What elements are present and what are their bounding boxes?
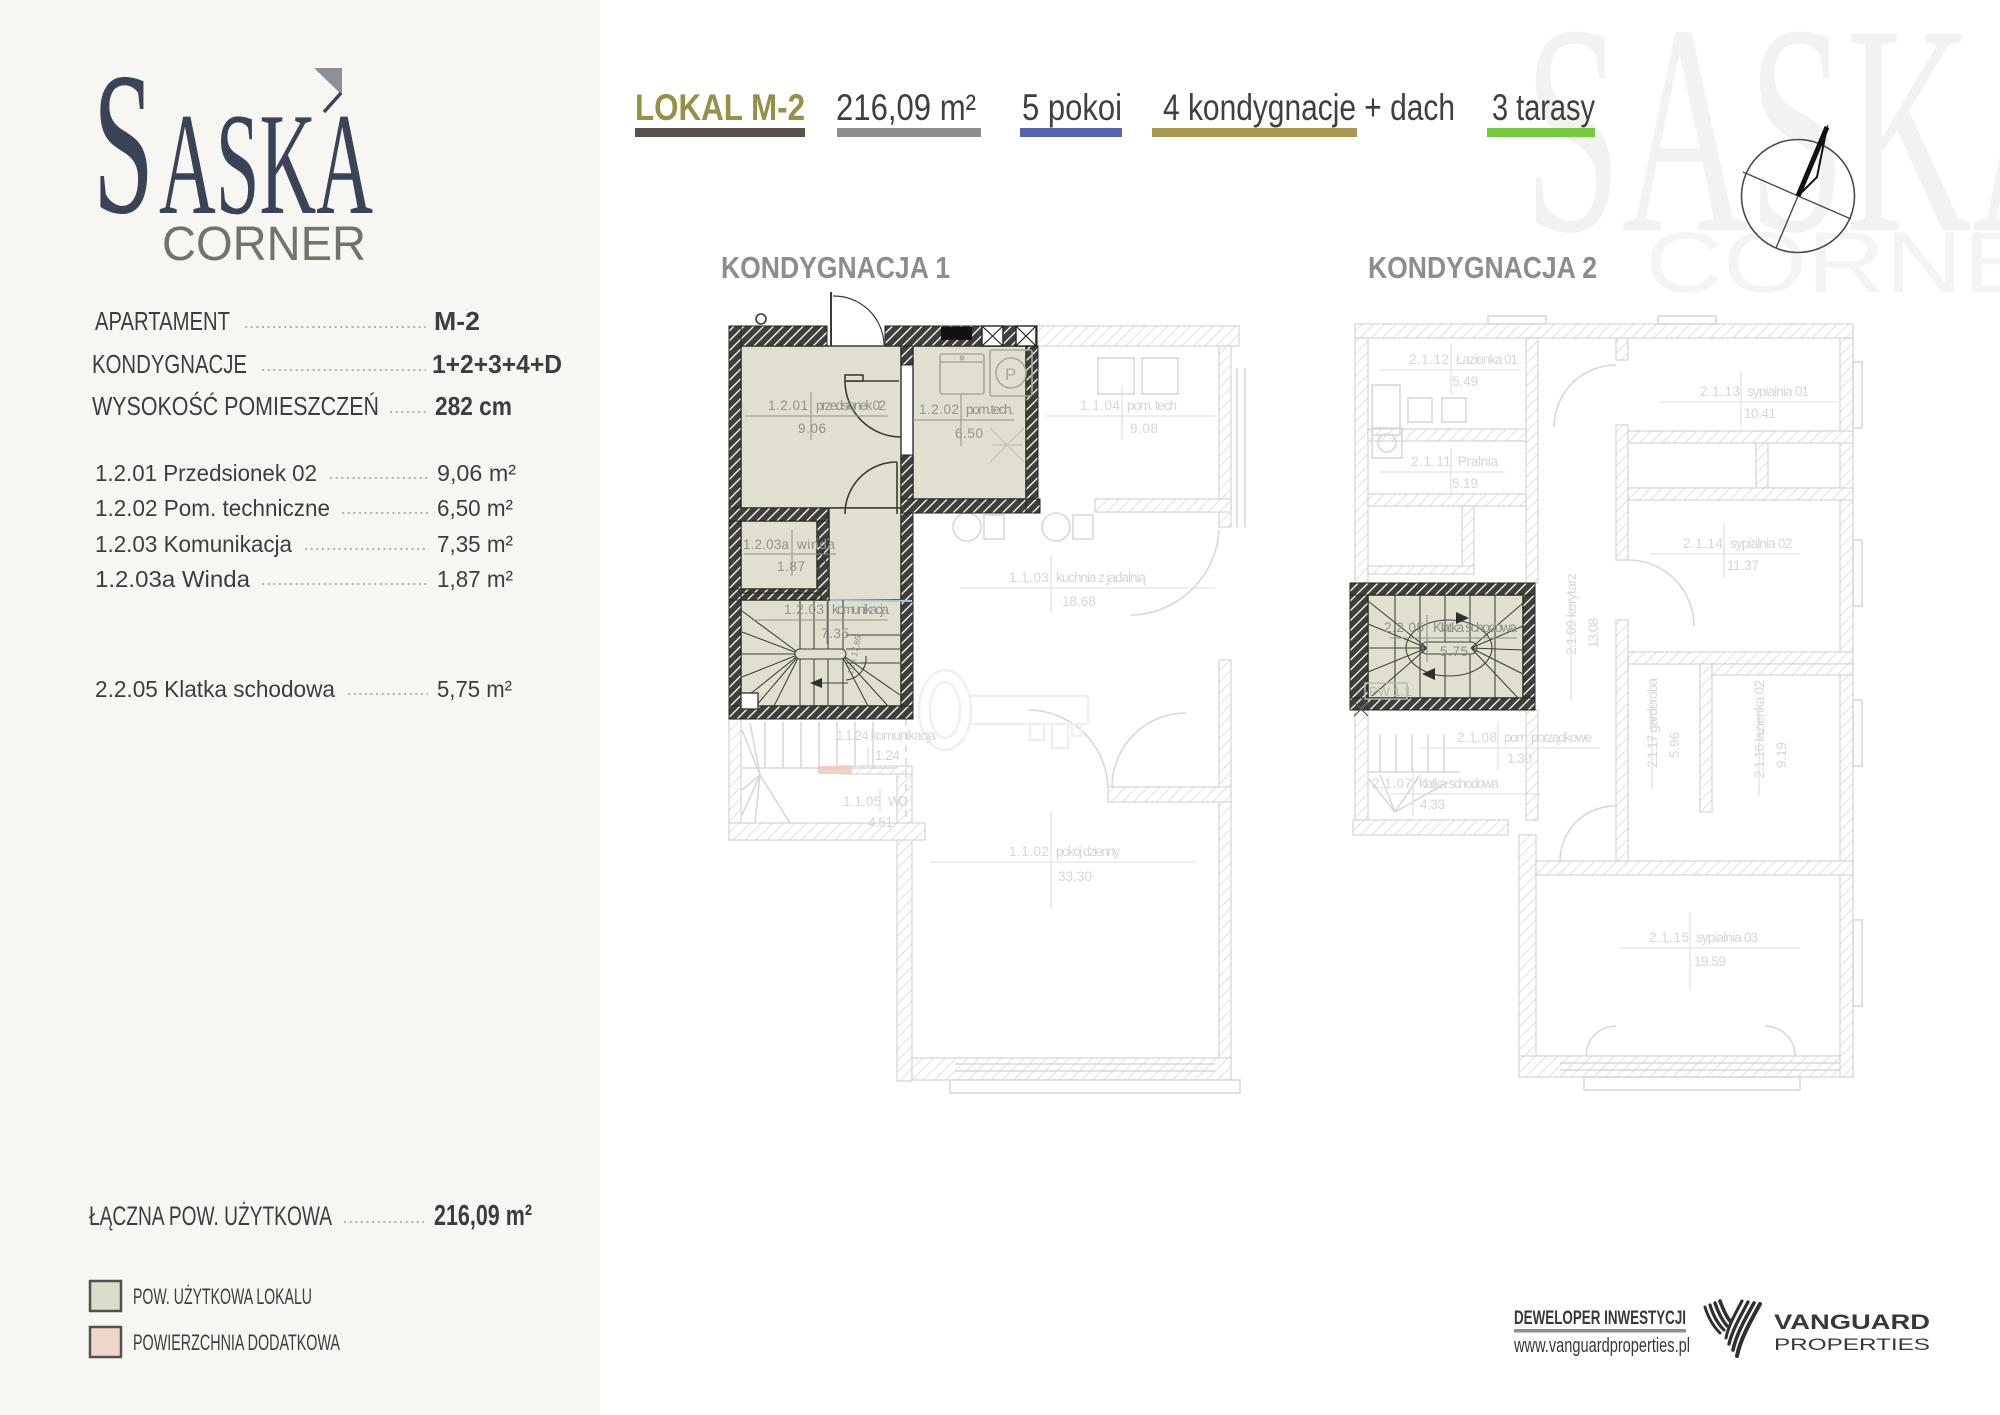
svg-text:9.06: 9.06 (798, 421, 826, 436)
svg-text:2.1.11: 2.1.11 (1411, 454, 1451, 469)
svg-text:5.19: 5.19 (1452, 476, 1478, 491)
svg-text:4.33: 4.33 (1420, 797, 1445, 812)
svg-text:1.1.24 komunikacja: 1.1.24 komunikacja (836, 728, 936, 743)
svg-text:WC: WC (888, 794, 908, 809)
svg-text:PROPERTIES: PROPERTIES (1774, 1335, 1930, 1354)
svg-text:KONDYGNACJA 1: KONDYGNACJA 1 (721, 250, 950, 285)
svg-text:winda: winda (796, 537, 835, 552)
svg-text:2.1.13: 2.1.13 (1700, 384, 1740, 399)
svg-text:1.2.03 Komunikacja: 1.2.03 Komunikacja (95, 531, 293, 557)
svg-text:1,87 m²: 1,87 m² (437, 566, 513, 592)
svg-text:S: S (93, 31, 154, 257)
svg-text:1.1.03: 1.1.03 (1009, 570, 1049, 585)
svg-text:9,06 m²: 9,06 m² (437, 460, 516, 486)
svg-text:5.49: 5.49 (1452, 374, 1478, 389)
svg-text:www.vanguardproperties.pl: www.vanguardproperties.pl (1513, 1335, 1690, 1357)
svg-text:10.41: 10.41 (1744, 406, 1776, 421)
svg-text:216,09 m²: 216,09 m² (836, 87, 976, 128)
svg-text:1.24: 1.24 (875, 748, 900, 763)
svg-text:2.1.15: 2.1.15 (1649, 930, 1689, 945)
svg-text:1.30: 1.30 (1507, 751, 1532, 766)
svg-text:2.2.05: 2.2.05 (1384, 620, 1424, 635)
svg-text:KONDYGNACJA 2: KONDYGNACJA 2 (1368, 250, 1597, 285)
svg-text:5.75: 5.75 (1440, 644, 1468, 659)
svg-text:pom. tech: pom. tech (1127, 398, 1177, 413)
svg-text:1.2.02 Pom. techniczne: 1.2.02 Pom. techniczne (95, 495, 330, 521)
svg-text:sypialnia 02: sypialnia 02 (1730, 536, 1792, 551)
svg-text:APARTAMENT: APARTAMENT (95, 306, 230, 336)
svg-text:sypialnia 03: sypialnia 03 (1696, 930, 1758, 945)
svg-text:2.1.12: 2.1.12 (1409, 352, 1449, 367)
svg-text:4 kondygnacje + dach: 4 kondygnacje + dach (1163, 87, 1455, 128)
svg-text:1.1.04: 1.1.04 (1080, 398, 1120, 413)
svg-text:19.59: 19.59 (1694, 954, 1726, 969)
svg-text:CORNER: CORNER (162, 218, 366, 271)
svg-text:LOKAL M-2: LOKAL M-2 (635, 87, 805, 128)
svg-text:klatka schodowa: klatka schodowa (1419, 776, 1499, 791)
svg-text:2.2.05 Klatka schodowa: 2.2.05 Klatka schodowa (95, 676, 336, 702)
svg-text:KONDYGNACJE: KONDYGNACJE (92, 349, 247, 379)
svg-text:7.35: 7.35 (821, 626, 849, 641)
svg-text:ŁĄCZNA POW. UŻYTKOWA: ŁĄCZNA POW. UŻYTKOWA (89, 1200, 332, 1231)
svg-text:pom.tech.: pom.tech. (966, 402, 1014, 417)
svg-text:6.50: 6.50 (955, 426, 983, 441)
svg-text:WYSOKOŚĆ POMIESZCZEŃ: WYSOKOŚĆ POMIESZCZEŃ (92, 391, 379, 421)
svg-text:6,50 m²: 6,50 m² (437, 495, 513, 521)
svg-text:1.2.03: 1.2.03 (784, 602, 824, 617)
svg-text:5.96: 5.96 (1667, 732, 1682, 758)
svg-text:2.1.07: 2.1.07 (1372, 776, 1412, 791)
svg-text:1.1.02: 1.1.02 (1009, 844, 1049, 859)
svg-text:M-2: M-2 (434, 306, 480, 336)
svg-text:1.2.01 Przedsionek 02: 1.2.01 Przedsionek 02 (95, 460, 317, 486)
svg-text:pom. porządkowe: pom. porządkowe (1504, 730, 1592, 745)
svg-text:5 pokoi: 5 pokoi (1022, 87, 1122, 128)
svg-text:pokój dzienny: pokój dzienny (1056, 844, 1120, 859)
svg-text:7,35 m²: 7,35 m² (437, 531, 513, 557)
svg-text:9.19: 9.19 (1774, 742, 1789, 768)
svg-text:kuchnia z jadalnią: kuchnia z jadalnią (1056, 570, 1146, 585)
svg-text:9.08: 9.08 (1130, 421, 1158, 436)
svg-text:PW 1.1: PW 1.1 (1369, 684, 1412, 699)
svg-text:przedsionek 02: przedsionek 02 (816, 398, 886, 413)
svg-text:P: P (1005, 365, 1016, 384)
svg-text:POWIERZCHNIA DODATKOWA: POWIERZCHNIA DODATKOWA (133, 1330, 340, 1355)
svg-text:1+2+3+4+D: 1+2+3+4+D (432, 349, 562, 379)
svg-text:komunikacja: komunikacja (832, 602, 889, 617)
svg-text:33.30: 33.30 (1058, 869, 1092, 884)
svg-text:Pralnia: Pralnia (1458, 454, 1498, 469)
svg-text:2.1.14: 2.1.14 (1683, 536, 1723, 551)
svg-text:5,75 m²: 5,75 m² (437, 676, 512, 702)
svg-text:1.2.03a: 1.2.03a (743, 537, 789, 552)
svg-text:2.1.08: 2.1.08 (1457, 730, 1497, 745)
svg-text:216,09 m²: 216,09 m² (434, 1200, 532, 1232)
svg-text:1.2.03a Winda: 1.2.03a Winda (95, 566, 251, 592)
svg-text:1.2.01: 1.2.01 (768, 398, 808, 413)
svg-text:Klatka schodowa: Klatka schodowa (1433, 620, 1517, 635)
svg-text:CORNER: CORNER (1645, 215, 2000, 311)
svg-text:VANGUARD: VANGUARD (1774, 1311, 1930, 1334)
svg-text:1.87: 1.87 (777, 559, 805, 574)
svg-text:POW. UŻYTKOWA LOKALU: POW. UŻYTKOWA LOKALU (133, 1284, 312, 1309)
svg-text:sypialnia 01: sypialnia 01 (1747, 384, 1809, 399)
svg-text:1.2.02: 1.2.02 (919, 402, 959, 417)
svg-text:4.51: 4.51 (868, 815, 893, 830)
svg-text:1.1.05: 1.1.05 (843, 794, 881, 809)
svg-text:DEWELOPER INWESTYCJI: DEWELOPER INWESTYCJI (1514, 1308, 1686, 1329)
svg-text:18.68: 18.68 (1062, 594, 1096, 609)
svg-text:3 tarasy: 3 tarasy (1492, 87, 1595, 128)
svg-text:282 cm: 282 cm (435, 391, 512, 421)
svg-text:11.37: 11.37 (1727, 558, 1759, 573)
svg-text:13.08: 13.08 (1586, 618, 1601, 648)
svg-text:Łazienka 01: Łazienka 01 (1456, 352, 1518, 367)
